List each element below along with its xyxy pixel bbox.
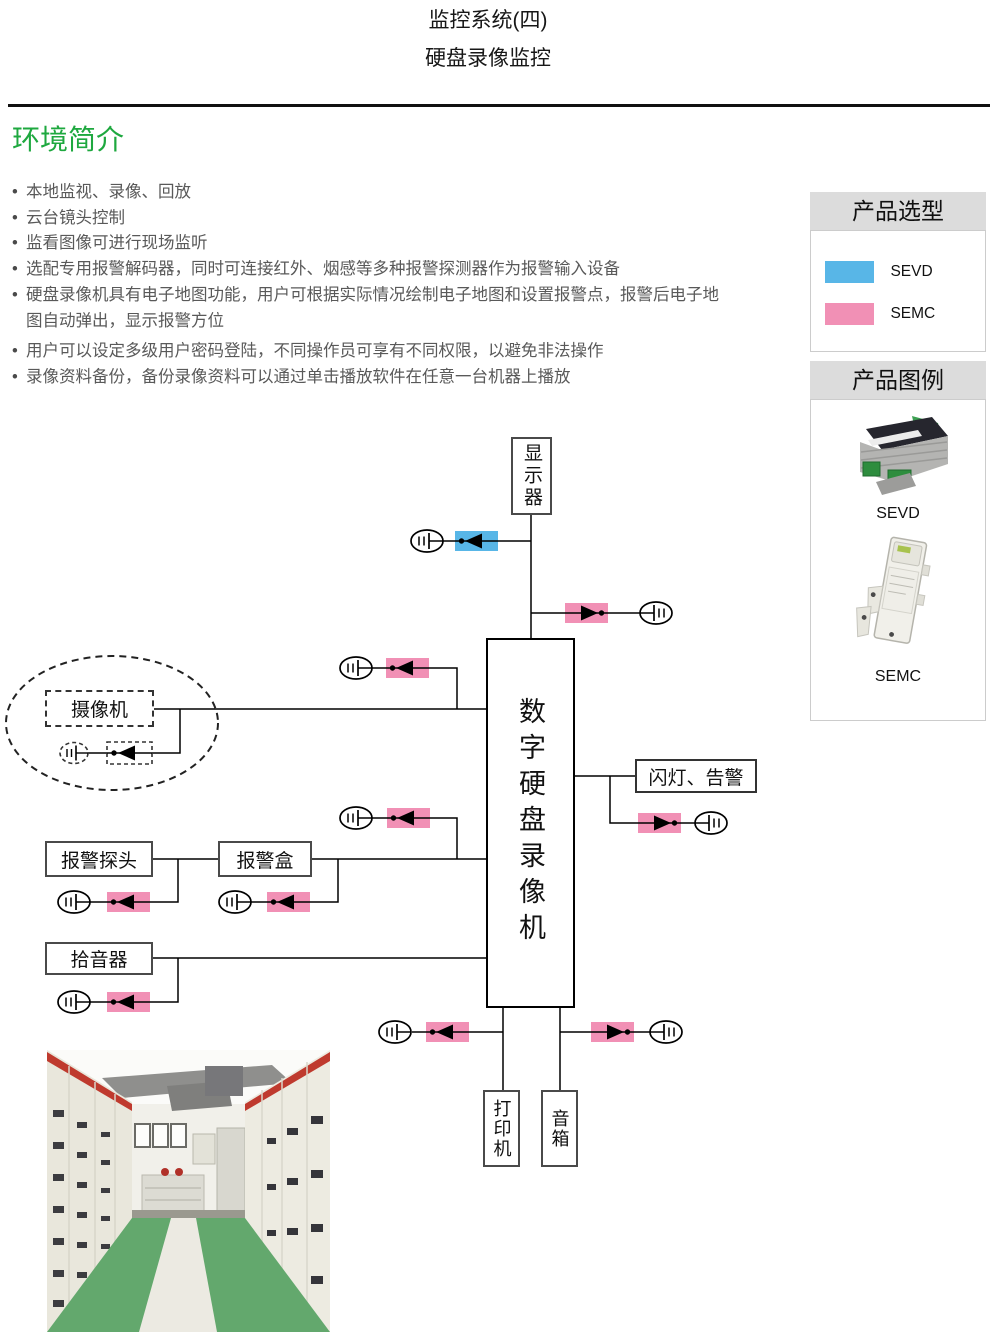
sevd-color-swatch	[825, 261, 874, 283]
node-camera: 摄像机	[45, 690, 154, 727]
node-printer: 打印机	[483, 1090, 520, 1167]
connector-icon	[58, 891, 90, 913]
semc-module	[426, 1022, 469, 1042]
legend-row-semc: SEMC	[825, 303, 985, 325]
node-monitor: 显示器	[511, 437, 552, 515]
bullet-item: 本地监视、录像、回放	[12, 180, 724, 206]
product-selection-body: SEVD SEMC	[810, 230, 986, 352]
semc-module	[387, 808, 430, 828]
connector-icon	[340, 807, 372, 829]
node-dvr: 数字硬盘录像机	[486, 638, 575, 1008]
connector-icon	[219, 891, 251, 913]
semc-product-image	[843, 535, 953, 661]
title-line-2: 硬盘录像监控	[0, 40, 976, 78]
bullet-item: 云台镜头控制	[12, 206, 724, 232]
semc-module	[591, 1022, 634, 1042]
legend-row-sevd: SEVD	[825, 261, 985, 283]
bullet-item: 录像资料备份，备份录像资料可以通过单击播放软件在任意一台机器上播放	[12, 365, 724, 391]
bullet-item: 硬盘录像机具有电子地图功能，用户可根据实际情况绘制电子地图和设置报警点，报警后电…	[12, 283, 724, 334]
product-legend-header: 产品图例	[810, 361, 986, 399]
sevd-module	[455, 531, 498, 551]
node-alarm-probe: 报警探头	[45, 841, 153, 877]
connection-lines	[74, 515, 695, 1090]
connector-icon	[695, 812, 727, 834]
connector-icon	[340, 657, 372, 679]
semc-module	[565, 603, 608, 623]
connector-icon	[58, 991, 90, 1013]
horizontal-rule	[8, 104, 990, 107]
sevd-product-label: SEVD	[811, 505, 985, 523]
equipment-room-photo	[47, 1050, 330, 1332]
semc-module	[386, 658, 429, 678]
dashed-module	[107, 742, 152, 764]
semc-color-swatch	[825, 303, 874, 325]
node-speaker: 音箱	[541, 1090, 578, 1167]
sevd-product-image	[848, 410, 948, 498]
node-alarm-light: 闪灯、告警	[635, 759, 757, 793]
product-sidebar: 产品选型 SEVD SEMC 产品图例 SEVD	[810, 192, 986, 721]
bullet-item: 用户可以设定多级用户密码登陆，不同操作员可享有不同权限，以避免非法操作	[12, 339, 724, 365]
semc-module	[638, 813, 681, 833]
product-selection-header: 产品选型	[810, 192, 986, 230]
product-legend-body: SEVD SEMC	[810, 399, 986, 721]
page-title: 监控系统(四) 硬盘录像监控	[0, 2, 976, 78]
title-line-1: 监控系统(四)	[0, 2, 976, 40]
semc-label: SEMC	[890, 305, 935, 323]
node-sound-pickup: 拾音器	[45, 942, 153, 975]
semc-module	[107, 892, 150, 912]
connector-icon-dashed	[60, 743, 88, 764]
bullet-item: 选配专用报警解码器，同时可连接红外、烟感等多种报警探测器作为报警输入设备	[12, 257, 724, 283]
feature-bullet-list: 本地监视、录像、回放云台镜头控制监看图像可进行现场监听选配专用报警解码器，同时可…	[12, 180, 724, 391]
connector-icon	[650, 1021, 682, 1043]
section-heading: 环境简介	[12, 118, 124, 158]
bullet-item: 监看图像可进行现场监听	[12, 231, 724, 257]
node-alarm-box: 报警盒	[218, 841, 312, 877]
sevd-label: SEVD	[890, 263, 932, 281]
connector-icon	[411, 530, 443, 552]
semc-module	[107, 992, 150, 1012]
connector-icon	[379, 1021, 411, 1043]
semc-product-label: SEMC	[811, 668, 985, 686]
semc-module	[267, 892, 310, 912]
connector-icon	[640, 602, 672, 624]
